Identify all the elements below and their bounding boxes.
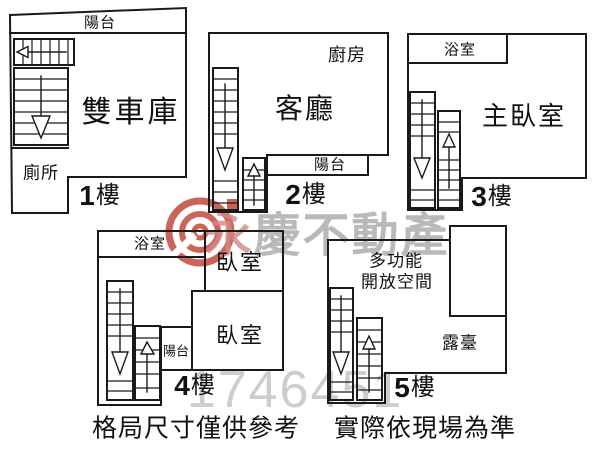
room-label-master-bedroom: 主臥室 [482,103,566,129]
disclaimer-right: 實際依現場為準 [334,417,516,442]
floor-label-5: 5樓 [394,374,436,402]
plan-linework [0,0,600,450]
room-label-garage: 雙車庫 [82,98,181,128]
room-label-bathroom-f4: 浴室 [134,237,166,252]
floor-1-stairs [14,39,74,145]
room-label-balcony-f1: 陽台 [84,16,116,31]
floor-label-3: 3樓 [471,183,513,211]
floor-5-stairs [330,288,382,400]
floorplan-image: 永慶不動產 1746451 [0,0,600,450]
room-label-living-room: 客廳 [275,95,335,123]
room-label-multifunction-line2: 開放空間 [361,274,433,291]
floor-label-4: 4樓 [174,372,216,400]
floor-2-stairs [213,68,265,210]
floor-3-stairs [410,92,460,208]
floor-4-stairs [107,281,160,400]
room-label-bedroom-upper: 臥室 [216,252,264,274]
room-label-multifunction-line1: 多功能 [369,253,423,270]
room-label-balcony-f4: 陽台 [163,345,189,358]
room-label-bathroom-f3: 浴室 [444,43,476,58]
room-label-toilet: 廁所 [23,165,59,182]
room-label-terrace: 露臺 [442,335,478,352]
floor-label-1: 1樓 [79,182,121,210]
floor-label-2: 2樓 [285,181,327,209]
room-label-balcony-f2: 陽台 [314,158,346,173]
room-label-kitchen: 廚房 [328,46,366,64]
disclaimer-left: 格局尺寸僅供參考 [92,417,300,442]
room-label-bedroom-lower: 臥室 [216,325,264,347]
